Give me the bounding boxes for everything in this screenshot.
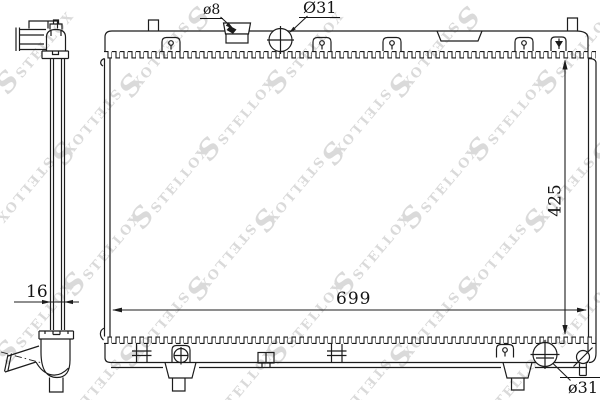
left-grommet	[172, 346, 190, 365]
core-right-channel	[589, 59, 597, 363]
mounting-clip-4	[515, 38, 533, 52]
mounting-clip-1	[162, 38, 180, 52]
core-fins-top	[104, 51, 596, 59]
side-mounting-foot	[50, 378, 64, 393]
core-fins-bottom	[104, 337, 596, 345]
filler-cap-circle	[267, 26, 294, 54]
core-left-channel	[100, 59, 110, 341]
baffle-bracket-2	[327, 344, 347, 363]
top-recess	[437, 31, 482, 41]
side-top-flange	[42, 51, 69, 59]
dimension-annotations	[14, 16, 587, 381]
radiator-drawing-svg	[0, 0, 600, 400]
label-core-thickness: 16	[26, 284, 48, 301]
top-right-fitting	[551, 37, 566, 51]
label-core-height: 425	[548, 182, 565, 220]
label-bleed-valve-diameter: ø8	[200, 3, 223, 19]
bottom-small-bracket	[258, 353, 274, 368]
top-tab-left	[149, 20, 159, 31]
mounting-clip-3	[383, 38, 401, 52]
top-tab-right	[568, 18, 578, 31]
side-inlet-pipe	[16, 28, 46, 52]
side-filler-neck	[47, 20, 66, 51]
retaining-screw	[574, 348, 593, 376]
drain-plug-circle	[531, 340, 560, 369]
technical-drawing-canvas: SSTELLOXSSTELLOXSSTELLOXSSTELLOXSSTELLOX…	[0, 0, 600, 400]
side-outlet-pipe	[1, 346, 42, 372]
label-filler-neck-diameter: Ø31	[299, 0, 340, 18]
front-view	[100, 18, 596, 391]
mounting-foot-1	[165, 363, 196, 392]
side-core-body	[51, 59, 65, 331]
side-bottom-tank	[36, 339, 70, 378]
mounting-clip-2	[313, 38, 331, 52]
label-core-width: 699	[336, 291, 371, 308]
side-view	[1, 20, 74, 392]
side-bottom-flange	[39, 331, 74, 339]
mounting-clip-bottom	[497, 345, 514, 358]
mounting-foot-2	[503, 363, 532, 391]
label-drain-plug-diameter: ø31	[560, 377, 600, 396]
baffle-bracket-1	[132, 344, 152, 363]
